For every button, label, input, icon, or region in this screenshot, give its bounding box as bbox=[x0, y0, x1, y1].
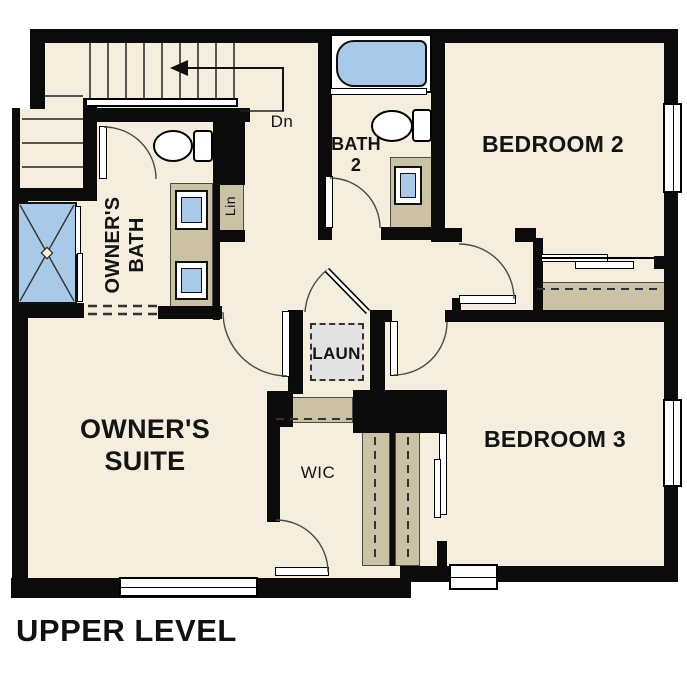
exterior-notch bbox=[0, 29, 30, 109]
wall-laundry-left bbox=[288, 310, 303, 394]
wall-closet-left bbox=[533, 238, 543, 320]
floor-plan: OWNER'S SUITE OWNER'S BATH BATH 2 BEDROO… bbox=[0, 0, 687, 687]
bath2-door bbox=[325, 176, 333, 228]
bedroom2-closet-shelf bbox=[536, 282, 665, 311]
room-label-bedroom3: BEDROOM 3 bbox=[455, 426, 655, 453]
bedroom3-door bbox=[390, 321, 398, 376]
wall-closet-right-stub bbox=[654, 256, 666, 269]
wall-bath2-bedroom2 bbox=[431, 29, 445, 242]
window-icon bbox=[663, 103, 682, 193]
wic-door bbox=[275, 567, 329, 576]
sink-icon bbox=[394, 166, 422, 205]
wall-center-mass bbox=[353, 390, 447, 433]
wall-left-upper bbox=[30, 29, 45, 109]
window-icon bbox=[663, 399, 682, 487]
wall-bedroom2-south bbox=[431, 228, 462, 242]
wall-bottom-bedroom3 bbox=[400, 566, 678, 582]
stairs-direction-label: Dn bbox=[262, 112, 302, 132]
room-label-linen: Lin bbox=[216, 176, 244, 236]
room-label-bath2: BATH 2 bbox=[318, 134, 394, 176]
wall-toilet-side bbox=[213, 108, 245, 185]
wall-wic-west bbox=[267, 391, 280, 522]
bedroom2-door bbox=[459, 295, 516, 304]
page-title: UPPER LEVEL bbox=[16, 613, 237, 649]
wall-shower-bottom bbox=[12, 303, 84, 318]
room-label-laundry: LAUN bbox=[303, 344, 370, 364]
room-label-bedroom2: BEDROOM 2 bbox=[453, 131, 653, 158]
bedroom2-closet-slider bbox=[575, 261, 634, 269]
owners-bath-door bbox=[99, 126, 107, 179]
room-label-wic: WIC bbox=[280, 463, 356, 483]
wall-bedroom3-stub bbox=[437, 541, 447, 567]
stair-railing bbox=[85, 98, 238, 107]
wall-bedroom3-north bbox=[445, 310, 666, 322]
room-label-owners-bath: OWNER'S BATH bbox=[66, 185, 186, 305]
closet-shelf-strip-a bbox=[362, 431, 390, 566]
window-icon bbox=[449, 564, 498, 590]
closet-shelf-strip-b bbox=[395, 431, 420, 566]
window-icon bbox=[119, 577, 258, 597]
wall-strip-divider bbox=[390, 431, 395, 566]
wall-bath-bottom bbox=[158, 306, 222, 319]
bathtub-icon bbox=[336, 40, 427, 87]
owners-suite-door bbox=[282, 311, 290, 377]
room-label-owners-suite: OWNER'S SUITE bbox=[40, 414, 250, 478]
wall-laundry-right bbox=[370, 310, 385, 394]
bathtub-ledge bbox=[330, 88, 427, 95]
bedroom3-closet-bypass-door bbox=[434, 459, 441, 518]
